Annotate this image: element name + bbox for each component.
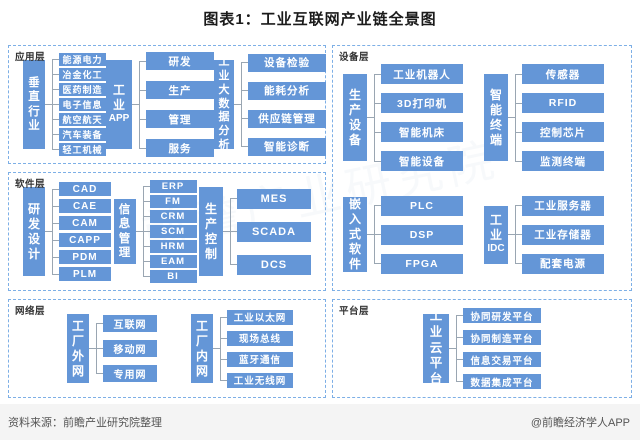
tree-child-node: CAD [59,182,111,196]
tree-child-node: CAE [59,199,111,213]
connector-line [367,117,374,118]
tree-child-node: 工业机器人 [381,64,463,84]
tree-child-node: 供应链管理 [248,110,326,128]
tree-child-row: 管理 [139,110,214,128]
tree-child-row: 移动网 [96,340,157,357]
tree-child-row: DCS [230,255,311,275]
tree-child-node: 能耗分析 [248,82,326,100]
tree-child-node: PDM [59,250,111,264]
tree-child-row: 汽车装备 [52,128,106,141]
section-application-layer: 应用层 垂直行业能源电力冶金化工医药制造电子信息航空航天汽车装备轻工机械工业AP… [8,45,326,164]
tree-parent-node: 工业APP [106,60,132,149]
tree-group: 嵌入式软件PLCDSPFPGA [343,187,480,282]
tree-child-row: 蓝牙通信 [220,352,293,367]
tree-children: 传感器RFID控制芯片监测终端 [515,64,604,171]
tree-child-node: 服务 [146,139,214,157]
connector-line [45,104,52,105]
network-groups: 工厂外网互联网移动网专用网工厂内网工业以太网现场总线蓝牙通信工业无线网 [9,300,325,397]
tree-child-row: MES [230,189,311,209]
tree-children: 工业服务器工业存储器配套电源 [515,196,604,274]
credit-text: @前瞻经济学人APP [531,414,630,430]
tree-child-row: 轻工机械 [52,143,106,156]
layer-label: 平台层 [339,303,369,317]
tree-child-node: 电子信息 [59,98,106,111]
tree-child-row: CAPP [52,233,111,247]
section-device-layer: 设备层 生产设备工业机器人3D打印机智能机床智能设备智能终端传感器RFID控制芯… [332,45,632,291]
tree-child-row: 供应链管理 [241,110,326,128]
section-platform-layer: 平台层 工业云平台协同研发平台协同制造平台信息交易平台数据集成平台 [332,299,632,398]
tree-child-row: 智能诊断 [241,138,326,156]
application-groups: 垂直行业能源电力冶金化工医药制造电子信息航空航天汽车装备轻工机械工业APP研发生… [9,46,325,163]
tree-child-row: PLC [374,196,463,216]
connector-line [132,104,139,105]
layer-label: 网络层 [15,303,45,317]
layer-label: 设备层 [339,49,369,63]
tree-child-node: 生产 [146,81,214,99]
tree-child-node: DCS [237,255,311,275]
section-software-layer: 软件层 研发设计CADCAECAMCAPPPDMPLM信息管理ERPFMCRMS… [8,172,326,291]
tree-parent-node: 生产控制 [199,187,223,276]
tree-child-row: CAD [52,182,111,196]
tree-child-node: CAM [59,216,111,230]
tree-child-row: CAE [52,199,111,213]
tree-parent-node: 工业云平台 [423,314,449,383]
tree-children: 研发生产管理服务 [139,52,214,157]
tree-child-row: RFID [515,93,604,113]
connector-line [508,117,515,118]
tree-children: ERPFMCRMSCMHRMEAMBI [143,180,197,283]
tree-child-row: SCADA [230,222,311,242]
tree-child-node: 移动网 [103,340,157,357]
tree-group: 生产控制MESSCADADCS [199,177,311,286]
tree-child-node: DSP [381,225,463,245]
layer-label: 软件层 [15,176,45,190]
tree-children: MESSCADADCS [230,189,311,275]
tree-child-node: 配套电源 [522,254,604,274]
tree-child-node: 协同研发平台 [463,308,541,323]
data-source-text: 资料来源：前瞻产业研究院整理 [8,414,162,430]
tree-child-node: PLM [59,267,111,281]
tree-child-node: 研发 [146,52,214,70]
tree-child-node: HRM [150,240,197,253]
tree-child-row: 互联网 [96,315,157,332]
tree-child-row: EAM [143,255,197,268]
tree-child-row: 能源电力 [52,53,106,66]
tree-child-row: ERP [143,180,197,193]
device-groups: 生产设备工业机器人3D打印机智能机床智能设备智能终端传感器RFID控制芯片监测终… [333,46,631,290]
tree-child-row: 航空航天 [52,113,106,126]
tree-child-row: DSP [374,225,463,245]
tree-child-row: 智能设备 [374,151,463,171]
tree-child-node: 蓝牙通信 [227,352,293,367]
tree-child-row: 现场总线 [220,331,293,346]
tree-child-node: 专用网 [103,365,157,382]
tree-parent-node: 智能终端 [484,74,508,161]
tree-child-row: 工业机器人 [374,64,463,84]
tree-child-row: 工业服务器 [515,196,604,216]
tree-child-row: 能耗分析 [241,82,326,100]
tree-child-row: 服务 [139,139,214,157]
tree-group: 垂直行业能源电力冶金化工医药制造电子信息航空航天汽车装备轻工机械 [23,50,106,159]
tree-children: 互联网移动网专用网 [96,315,157,382]
tree-child-node: FM [150,195,197,208]
tree-children: PLCDSPFPGA [374,196,463,274]
tree-group: 工厂外网互联网移动网专用网 [67,304,157,393]
tree-child-node: 智能诊断 [248,138,326,156]
connector-line [223,231,230,232]
tree-child-node: 设备检验 [248,54,326,72]
tree-child-row: CRM [143,210,197,223]
tree-child-node: BI [150,270,197,283]
tree-child-row: 工业存储器 [515,225,604,245]
tree-child-row: 传感器 [515,64,604,84]
tree-parent-node: 信息管理 [114,199,136,264]
tree-child-node: 工业服务器 [522,196,604,216]
tree-child-row: 配套电源 [515,254,604,274]
tree-child-node: 能源电力 [59,53,106,66]
tree-child-row: 生产 [139,81,214,99]
connector-line [45,231,52,232]
tree-child-node: 协同制造平台 [463,330,541,345]
tree-child-node: EAM [150,255,197,268]
tree-child-row: 智能机床 [374,122,463,142]
tree-child-row: 电子信息 [52,98,106,111]
tree-child-row: PDM [52,250,111,264]
tree-group: 智能终端传感器RFID控制芯片监测终端 [484,64,621,171]
tree-parent-node: 研发设计 [23,187,45,276]
tree-child-node: 现场总线 [227,331,293,346]
tree-child-node: 冶金化工 [59,68,106,81]
tree-child-node: 智能设备 [381,151,463,171]
section-network-layer: 网络层 工厂外网互联网移动网专用网工厂内网工业以太网现场总线蓝牙通信工业无线网 [8,299,326,398]
tree-child-node: 管理 [146,110,214,128]
tree-parent-node: 生产设备 [343,74,367,161]
footer-bar: 资料来源：前瞻产业研究院整理 @前瞻经济学人APP [0,404,640,440]
tree-parent-node: 垂直行业 [23,60,45,149]
tree-child-node: 传感器 [522,64,604,84]
tree-child-row: 监测终端 [515,151,604,171]
tree-child-row: SCM [143,225,197,238]
tree-child-row: BI [143,270,197,283]
tree-child-node: 工业以太网 [227,310,293,325]
tree-child-row: PLM [52,267,111,281]
tree-group: 生产设备工业机器人3D打印机智能机床智能设备 [343,64,480,171]
tree-parent-node: 工厂外网 [67,314,89,383]
tree-child-row: 专用网 [96,365,157,382]
tree-parent-node: 工业IDC [484,206,508,264]
tree-child-node: 工业无线网 [227,373,293,388]
tree-parent-node: 工业大数据分析 [214,60,234,149]
tree-child-row: FPGA [374,254,463,274]
tree-child-row: 协同制造平台 [456,330,541,345]
tree-child-node: 互联网 [103,315,157,332]
tree-children: CADCAECAMCAPPPDMPLM [52,182,111,281]
connector-line [213,348,220,349]
tree-group: 工业云平台协同研发平台协同制造平台信息交易平台数据集成平台 [423,304,541,393]
tree-child-node: MES [237,189,311,209]
tree-child-node: ERP [150,180,197,193]
tree-child-node: CAPP [59,233,111,247]
tree-child-node: FPGA [381,254,463,274]
tree-child-row: 3D打印机 [374,93,463,113]
tree-group: 信息管理ERPFMCRMSCMHRMEAMBI [114,177,197,286]
tree-child-row: 工业以太网 [220,310,293,325]
layer-label: 应用层 [15,49,45,63]
tree-children: 设备检验能耗分析供应链管理智能诊断 [241,54,326,156]
tree-child-row: 研发 [139,52,214,70]
tree-group: 工厂内网工业以太网现场总线蓝牙通信工业无线网 [191,304,293,393]
tree-child-row: 医药制造 [52,83,106,96]
connector-line [234,104,241,105]
tree-parent-node: 嵌入式软件 [343,197,367,272]
tree-child-node: RFID [522,93,604,113]
tree-parent-node: 工厂内网 [191,314,213,383]
software-groups: 研发设计CADCAECAMCAPPPDMPLM信息管理ERPFMCRMSCMHR… [9,173,325,290]
tree-child-node: 航空航天 [59,113,106,126]
connector-line [136,231,143,232]
tree-child-node: SCM [150,225,197,238]
tree-child-row: CAM [52,216,111,230]
tree-child-node: 信息交易平台 [463,352,541,367]
connector-line [508,234,515,235]
tree-child-row: 设备检验 [241,54,326,72]
tree-child-node: 工业存储器 [522,225,604,245]
tree-child-row: FM [143,195,197,208]
tree-child-node: 医药制造 [59,83,106,96]
tree-child-row: HRM [143,240,197,253]
platform-groups: 工业云平台协同研发平台协同制造平台信息交易平台数据集成平台 [333,300,631,397]
tree-child-row: 控制芯片 [515,122,604,142]
tree-group: 研发设计CADCAECAMCAPPPDMPLM [23,177,111,286]
tree-child-row: 协同研发平台 [456,308,541,323]
tree-children: 工业以太网现场总线蓝牙通信工业无线网 [220,310,293,388]
tree-children: 能源电力冶金化工医药制造电子信息航空航天汽车装备轻工机械 [52,53,106,156]
tree-child-node: 智能机床 [381,122,463,142]
page-title: 图表1：工业互联网产业链全景图 [0,8,640,29]
tree-child-row: 数据集成平台 [456,374,541,389]
tree-child-node: CRM [150,210,197,223]
connector-line [89,348,96,349]
connector-line [449,348,456,349]
tree-child-node: 监测终端 [522,151,604,171]
tree-children: 工业机器人3D打印机智能机床智能设备 [374,64,463,171]
tree-group: 工业APP研发生产管理服务 [106,50,214,159]
tree-child-node: 数据集成平台 [463,374,541,389]
tree-child-node: 控制芯片 [522,122,604,142]
tree-group: 工业大数据分析设备检验能耗分析供应链管理智能诊断 [214,50,326,159]
tree-child-node: SCADA [237,222,311,242]
tree-child-node: 轻工机械 [59,143,106,156]
tree-child-row: 信息交易平台 [456,352,541,367]
tree-child-node: 3D打印机 [381,93,463,113]
tree-children: 协同研发平台协同制造平台信息交易平台数据集成平台 [456,308,541,389]
tree-child-row: 工业无线网 [220,373,293,388]
tree-child-row: 冶金化工 [52,68,106,81]
tree-group: 工业IDC工业服务器工业存储器配套电源 [484,196,621,274]
tree-child-node: PLC [381,196,463,216]
connector-line [367,234,374,235]
tree-child-node: 汽车装备 [59,128,106,141]
